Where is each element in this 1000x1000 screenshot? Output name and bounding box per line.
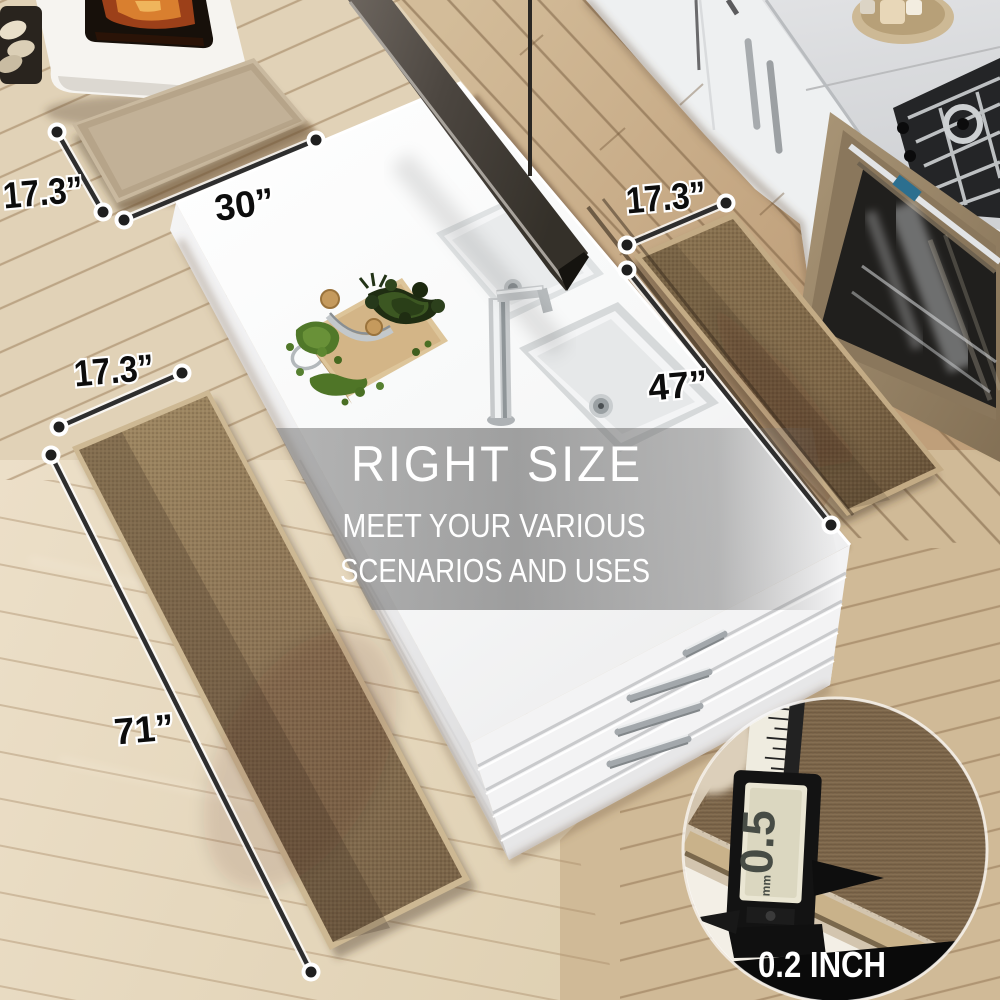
svg-text:mm: mm — [759, 875, 774, 897]
svg-text:RIGHT SIZE: RIGHT SIZE — [351, 436, 643, 492]
svg-text:71”: 71” — [112, 707, 175, 753]
svg-text:SCENARIOS AND USES: SCENARIOS AND USES — [340, 552, 650, 589]
svg-text:17.3”: 17.3” — [72, 347, 155, 395]
svg-text:MEET YOUR VARIOUS: MEET YOUR VARIOUS — [343, 507, 646, 544]
svg-text:0.5: 0.5 — [730, 809, 785, 876]
svg-text:30”: 30” — [212, 180, 277, 229]
svg-text:47”: 47” — [646, 363, 709, 409]
svg-text:0.2 INCH: 0.2 INCH — [758, 944, 886, 985]
svg-text:17.3”: 17.3” — [624, 174, 707, 222]
svg-text:17.3”: 17.3” — [1, 169, 84, 217]
